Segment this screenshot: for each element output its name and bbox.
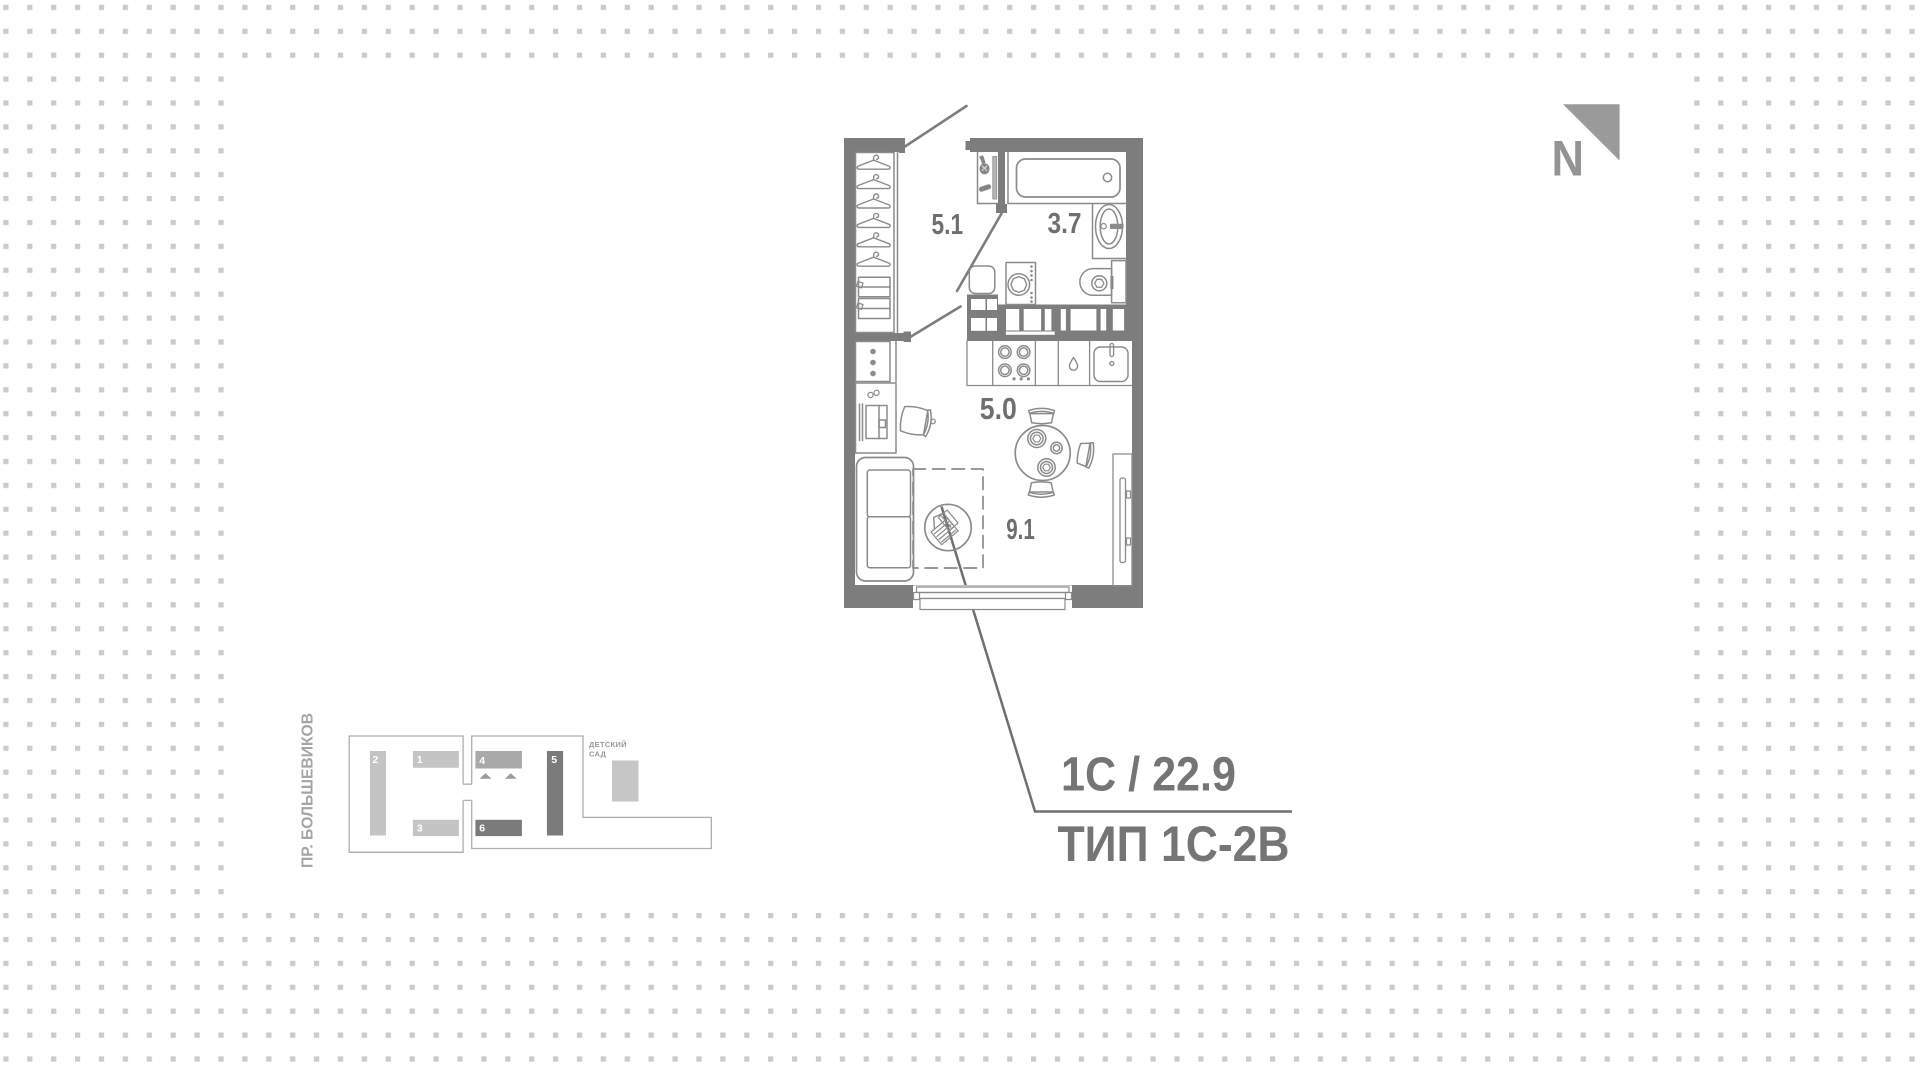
svg-text:5.0: 5.0 (980, 391, 1017, 426)
svg-text:2: 2 (373, 754, 379, 766)
svg-text:ДЕТСКИЙ: ДЕТСКИЙ (589, 740, 627, 749)
svg-text:5: 5 (551, 754, 557, 766)
svg-text:N: N (1552, 131, 1585, 187)
svg-text:ТИП 1С-2В: ТИП 1С-2В (1058, 816, 1290, 872)
svg-text:1: 1 (417, 754, 423, 766)
svg-text:ПР. БОЛЬШЕВИКОВ: ПР. БОЛЬШЕВИКОВ (300, 713, 317, 868)
svg-text:3: 3 (417, 823, 423, 835)
svg-text:5.1: 5.1 (932, 209, 964, 241)
svg-text:9.1: 9.1 (1006, 514, 1035, 546)
svg-text:4: 4 (479, 755, 485, 767)
svg-text:3.7: 3.7 (1048, 208, 1082, 240)
svg-text:1С / 22.9: 1С / 22.9 (1061, 749, 1236, 802)
svg-text:САД: САД (589, 750, 607, 759)
svg-text:6: 6 (479, 823, 485, 835)
